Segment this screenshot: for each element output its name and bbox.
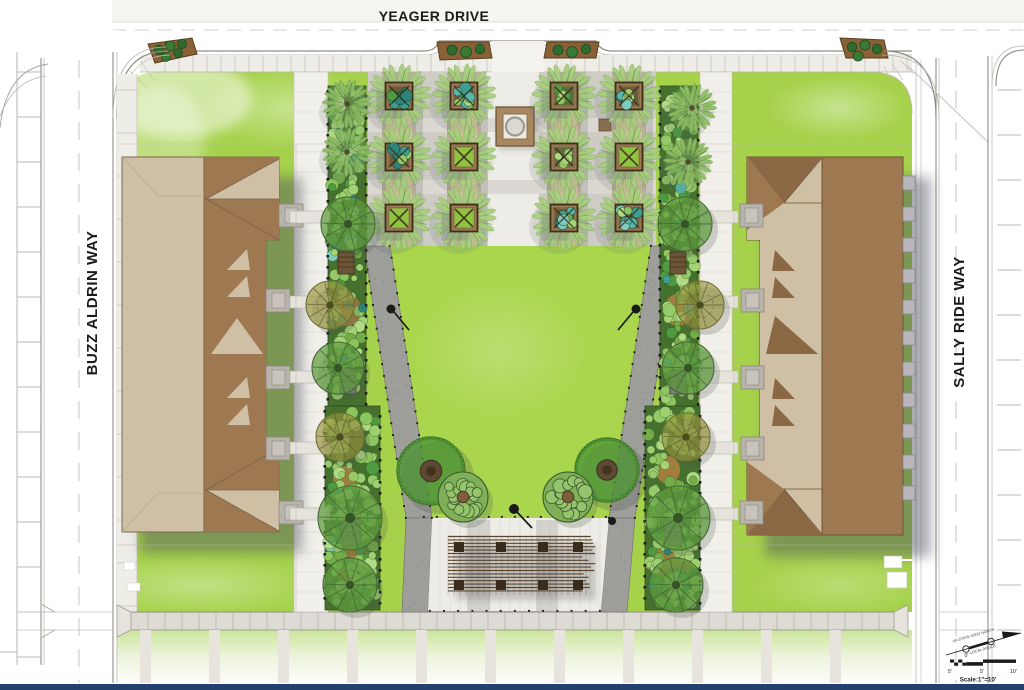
svg-text:10': 10' [1010, 669, 1017, 675]
svg-text:YEAGER DRIVE: YEAGER DRIVE [379, 8, 490, 24]
svg-text:Scale:1"=10': Scale:1"=10' [960, 677, 997, 684]
svg-text:5': 5' [948, 669, 952, 675]
svg-text:5': 5' [980, 669, 984, 675]
svg-text:0': 0' [965, 653, 969, 659]
svg-text:SALLY RIDE WAY: SALLY RIDE WAY [951, 256, 968, 387]
svg-text:BUZZ ALDRIN WAY: BUZZ ALDRIN WAY [84, 231, 101, 376]
